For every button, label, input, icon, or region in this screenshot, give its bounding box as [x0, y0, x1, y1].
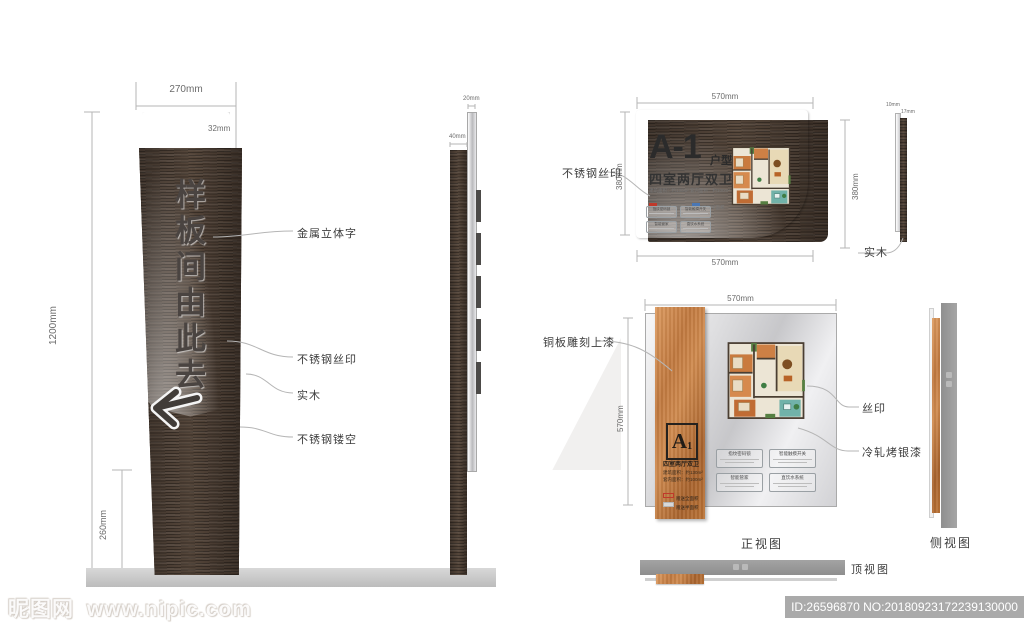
plaque-side-dim-plate-label: 10mm	[886, 102, 900, 108]
callout-metal-letters: 金属立体字	[297, 225, 357, 241]
dim-offset-label: 32mm	[208, 124, 230, 133]
panel2-unit-number: 1	[687, 441, 692, 452]
feature-block: 指纹密码锁	[716, 449, 763, 468]
plaque-feature-grid: 指纹密码锁 智能触摸开关 智能管家 直饮水系统	[646, 206, 712, 233]
side-dim-wood-label: 40mm	[449, 134, 466, 140]
callout-hollow: 不锈钢镂空	[297, 431, 357, 447]
panel2-unit-badge: A1	[666, 423, 698, 460]
panel2-topview-copper	[656, 574, 704, 584]
panel2-subtitle: 四室两厅双卫	[663, 459, 699, 468]
image-id-text: ID:26596870 NO:20180923172239130000	[791, 600, 1018, 614]
plaque-area-line: 建筑面积：约130m² 套内面积：约100m²	[649, 188, 730, 194]
callout-silkscreen: 不锈钢丝印	[297, 351, 357, 367]
site-watermark: 昵图网 www.nipic.com	[8, 593, 252, 623]
panel2-area-line1: 建筑面积：约130m²	[663, 470, 703, 476]
plaque-callout-face: 不锈钢丝印	[562, 165, 622, 181]
view-label-front: 正视图	[741, 535, 783, 552]
feature-block: 智能管家	[716, 473, 763, 492]
signage-design-sheet: 样板间由此去 A-1 户型 四室两厅双卫 建筑面积：约130m² 套内面积：约1…	[0, 0, 1024, 626]
dim-height-label: 1200mm	[48, 306, 59, 345]
brand-mark	[946, 372, 952, 378]
feature-block: 智能触摸开关	[769, 449, 816, 468]
plaque-dim-top-label: 570mm	[637, 92, 813, 101]
plaque-side-dim-wood-label: 17mm	[901, 109, 915, 115]
plaque-face-panel: A-1 户型 四室两厅双卫 建筑面积：约130m² 套内面积：约100m² 赠送…	[636, 110, 808, 238]
floor-plan	[726, 128, 796, 226]
ground-bar	[86, 568, 496, 587]
plaque-subtitle: 四室两厅双卫	[649, 169, 733, 188]
panel2-sideview-body	[941, 303, 957, 528]
feature-block: 直饮水系统	[680, 221, 711, 233]
feature-block: 直饮水系统	[769, 473, 816, 492]
feature-block: 智能触摸开关	[680, 206, 711, 218]
brand-mark	[742, 564, 748, 570]
panel2-copper-strip: A1 四室两厅双卫 建筑面积：约130m² 套内面积：约100m² 赠送全面积 …	[655, 307, 705, 519]
feature-block: 智能管家	[646, 221, 677, 233]
panel2-dim-top-label: 570mm	[645, 294, 836, 303]
plaque-unit-code: A-1	[649, 130, 701, 164]
callout-wood: 实木	[297, 387, 321, 403]
panel2-callout-copper: 铜板雕刻上漆	[543, 334, 615, 350]
panel2-callout-silk: 丝印	[862, 400, 886, 416]
side-dim-plate-label: 20mm	[463, 96, 480, 102]
totem-side-letter-slots	[476, 190, 481, 395]
panel2-sideview-copper	[932, 318, 940, 513]
brand-mark	[946, 381, 952, 387]
panel2-dim-left-label: 570mm	[616, 405, 625, 432]
plaque-callout-back: 实木	[864, 244, 888, 260]
dim-width-label: 270mm	[136, 84, 236, 95]
feature-block: 指纹密码锁	[646, 206, 677, 218]
legend-silver-swatch	[663, 502, 674, 507]
site-name: 昵图网	[8, 598, 74, 621]
totem-side-wood	[450, 150, 467, 575]
dim-base-label: 260mm	[98, 510, 108, 540]
floor-plan	[720, 332, 812, 432]
panel2-feature-grid: 指纹密码锁 智能触摸开关 智能管家 直饮水系统	[716, 449, 816, 492]
brand-mark	[733, 564, 739, 570]
panel2-legend-row2: 赠送半面积	[663, 496, 699, 514]
legend-label: 赠送半面积	[676, 505, 699, 510]
plaque-dim-bottom-label: 570mm	[637, 258, 813, 267]
panel2-area-line2: 套内面积：约100m²	[663, 477, 703, 483]
image-id-bar: ID:26596870 NO:20180923172239130000	[785, 596, 1024, 618]
plaque-side-wood	[900, 118, 907, 242]
view-label-top: 顶视图	[851, 561, 890, 577]
panel2-unit-letter: A	[672, 431, 687, 452]
totem-sign-text: 样板间由此去	[165, 178, 210, 406]
plaque-dim-right-label: 380mm	[851, 173, 860, 200]
panel2-callout-paint: 冷轧烤银漆	[862, 444, 922, 460]
site-url: www.nipic.com	[87, 598, 252, 621]
view-label-side: 侧视图	[930, 534, 972, 551]
background-accent-shape	[543, 338, 621, 470]
